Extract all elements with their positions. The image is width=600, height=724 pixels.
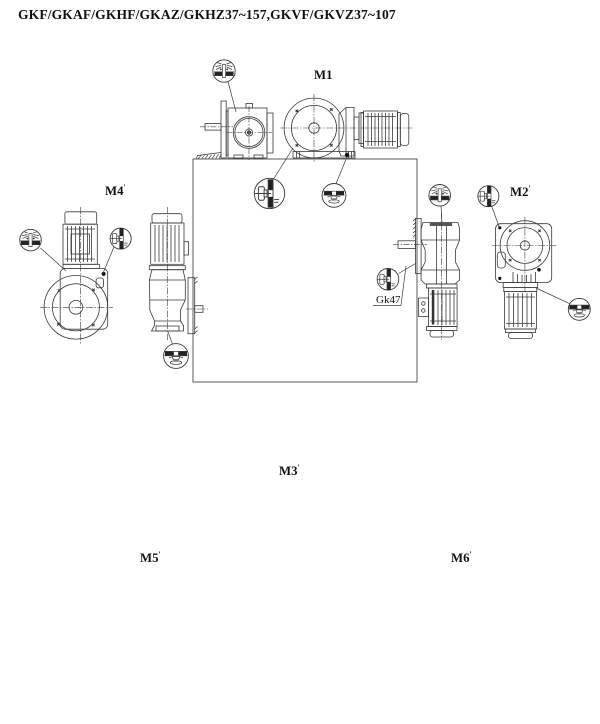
svg-text:M3': M3' — [279, 463, 300, 478]
svg-text:GKF/GKAF/GKHF/GKAZ/GKHZ37~157,: GKF/GKAF/GKHF/GKAZ/GKHZ37~157,GKVF/GKVZ3… — [18, 7, 396, 22]
svg-text:M2': M2' — [510, 184, 531, 199]
svg-text:M1: M1 — [314, 68, 332, 82]
svg-text:M5': M5' — [140, 550, 161, 565]
svg-text:M6': M6' — [451, 550, 472, 565]
svg-text:Gk47: Gk47 — [376, 294, 401, 306]
svg-text:M4': M4' — [105, 183, 126, 198]
